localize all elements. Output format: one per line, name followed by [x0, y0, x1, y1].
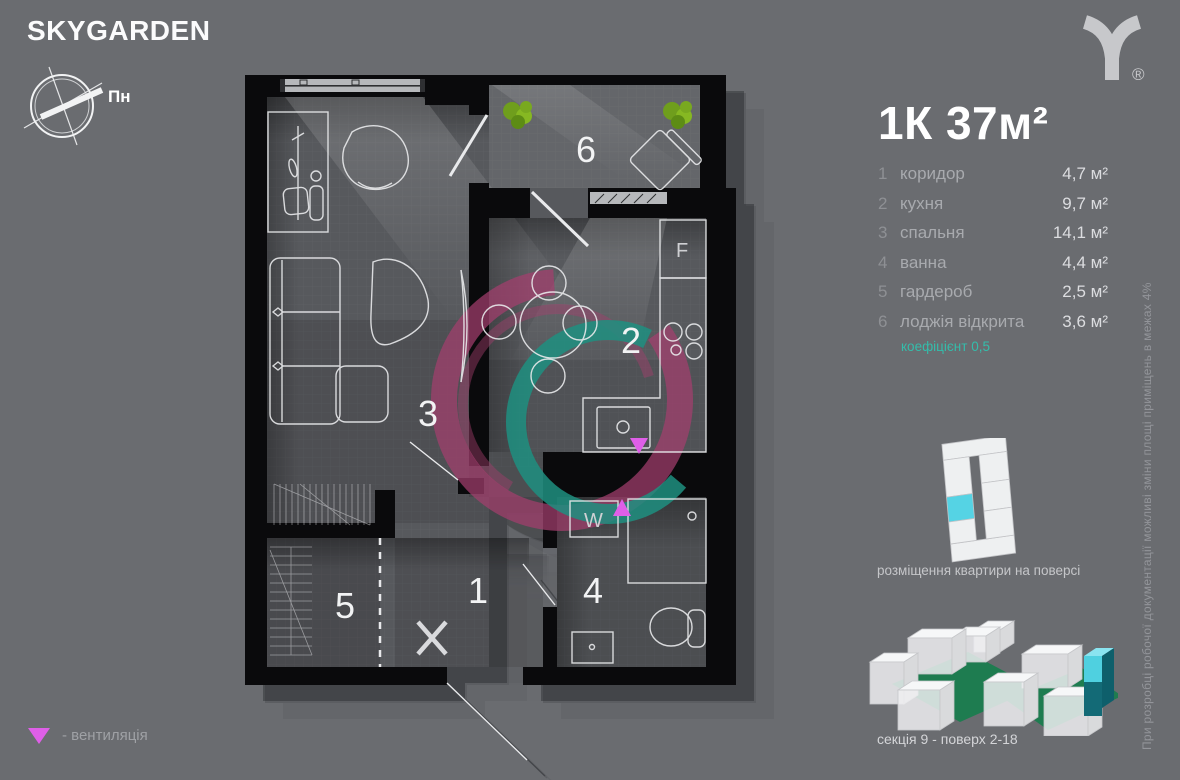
brand-mark-icon: ®: [1072, 14, 1156, 88]
room-name: гардероб: [900, 282, 1062, 302]
building-highlight-section: [1084, 648, 1114, 716]
compass-icon: Пн: [14, 60, 144, 160]
room-row: 5 гардероб 2,5 м²: [878, 282, 1108, 312]
vent-legend-label: - вентиляція: [62, 727, 148, 744]
room-name: лоджія відкрита: [900, 312, 1062, 332]
room-number: 5: [878, 282, 900, 302]
registered-symbol: ®: [1132, 65, 1145, 84]
room-row: 1 коридор 4,7 м²: [878, 164, 1108, 194]
room-label-1: 1: [468, 570, 488, 611]
room-number: 6: [878, 312, 900, 332]
room-label-4: 4: [583, 570, 603, 611]
room-row: 6 лоджія відкрита 3,6 м²: [878, 312, 1108, 342]
brand-logo: SKYGARDEN: [27, 15, 210, 47]
placement-diagram: [935, 438, 1035, 570]
page-background: SKYGARDEN Пн ®: [0, 0, 1180, 780]
room-name: кухня: [900, 194, 1062, 214]
room-label-5: 5: [335, 585, 355, 626]
fridge-label: F: [676, 240, 688, 262]
room-area: 14,1 м²: [1053, 223, 1108, 243]
compass-north-label: Пн: [108, 87, 131, 106]
floorplan: 1 2 3 4 5 6 F W: [240, 70, 800, 775]
apartment-title: 1К 37м²: [878, 96, 1048, 150]
room-area: 2,5 м²: [1062, 282, 1108, 302]
room-list: 1 коридор 4,7 м² 2 кухня 9,7 м² 3 спальн…: [878, 164, 1108, 342]
room-row: 2 кухня 9,7 м²: [878, 194, 1108, 224]
room-name: спальня: [900, 223, 1053, 243]
room-row: 4 ванна 4,4 м²: [878, 253, 1108, 283]
building-3d: [856, 596, 1118, 736]
room-row: 3 спальня 14,1 м²: [878, 223, 1108, 253]
room-number: 4: [878, 253, 900, 273]
room-label-2: 2: [621, 320, 641, 361]
room-number: 1: [878, 164, 900, 184]
washer-label: W: [584, 510, 603, 532]
room-name: ванна: [900, 253, 1062, 273]
vent-legend-icon: [28, 728, 50, 744]
room-label-6: 6: [576, 129, 596, 170]
room-area: 4,7 м²: [1062, 164, 1108, 184]
disclaimer-vertical: При розробці робочої документації можлив…: [1140, 235, 1160, 750]
coefficient-note: коефіцієнт 0,5: [901, 339, 990, 354]
room-area: 4,4 м²: [1062, 253, 1108, 273]
ventilation-legend: - вентиляція: [28, 727, 148, 744]
placement-caption: розміщення квартири на поверсі: [877, 563, 1080, 578]
room-number: 3: [878, 223, 900, 243]
room-label-3: 3: [418, 393, 438, 434]
room-number: 2: [878, 194, 900, 214]
room-area: 3,6 м²: [1062, 312, 1108, 332]
room-area: 9,7 м²: [1062, 194, 1108, 214]
placement-highlight-unit: [947, 494, 975, 523]
room-name: коридор: [900, 164, 1062, 184]
building-caption: секція 9 - поверх 2-18: [877, 731, 1018, 747]
